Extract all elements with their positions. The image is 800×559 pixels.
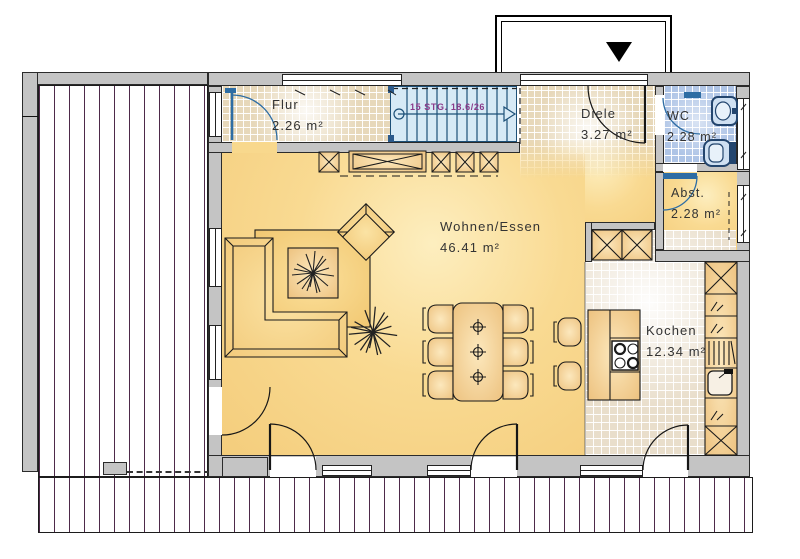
window-left-flur xyxy=(209,92,222,137)
room-area: 46.41 m² xyxy=(440,237,541,258)
staircase-area xyxy=(390,86,517,142)
deck-frame-joint xyxy=(22,116,38,117)
window-top-flur xyxy=(282,74,402,86)
deck-bottom xyxy=(38,477,753,533)
window-bottom-1 xyxy=(322,465,372,476)
room-label-wc: WC 2.28 m² xyxy=(667,106,717,148)
porch-inner-line xyxy=(501,21,666,72)
wall-abst-bottom xyxy=(655,250,750,262)
room-label-flur: Flur 2.26 m² xyxy=(272,94,324,136)
room-name: Kochen xyxy=(646,320,706,341)
kitchen-door-opening xyxy=(643,457,688,477)
room-area: 12.34 m² xyxy=(646,341,706,362)
window-left-1 xyxy=(209,228,222,287)
terrace-door-bl-opening xyxy=(270,457,316,477)
window-left-2 xyxy=(209,325,222,380)
deck-frame-left xyxy=(22,72,38,472)
entrance-porch xyxy=(495,15,672,72)
entrance-marker-icon xyxy=(606,42,632,62)
room-label-wohnen-essen: Wohnen/Essen 46.41 m² xyxy=(440,216,541,258)
wc-door-opening xyxy=(655,95,664,135)
deck-frame-top xyxy=(22,72,208,85)
room-label-kochen: Kochen 12.34 m² xyxy=(646,320,706,362)
wall-kitchen-top xyxy=(585,222,655,230)
staircase-label: 15 STG. 18.6/26 xyxy=(410,102,485,112)
entrance-door-sidelight xyxy=(520,74,648,86)
room-wohnen-essen-floor xyxy=(222,153,585,455)
deck-boundary-dashes xyxy=(127,471,210,473)
window-bottom-kitchen xyxy=(580,465,643,476)
terrace-door-left-opening xyxy=(209,387,222,435)
window-right-abst xyxy=(737,185,750,243)
room-name: Wohnen/Essen xyxy=(440,216,541,237)
wall-kitchen-stub xyxy=(585,222,592,262)
window-right-wc xyxy=(737,98,750,170)
flur-passage xyxy=(232,142,277,153)
window-bottom-2 xyxy=(427,465,471,476)
room-area: 2.28 m² xyxy=(667,127,717,148)
deck-left xyxy=(38,85,208,477)
floor-plan: Flur 2.26 m² 15 STG. 18.6/26 Diele 3.27 … xyxy=(0,0,800,559)
room-name: Flur xyxy=(272,94,324,115)
abst-door-opening xyxy=(663,164,697,172)
room-label-diele: Diele 3.27 m² xyxy=(581,103,633,145)
room-name: Diele xyxy=(581,103,633,124)
wall-corner-step xyxy=(222,457,268,477)
room-area: 2.28 m² xyxy=(671,204,721,225)
room-name: Abst. xyxy=(671,183,721,204)
room-area: 2.26 m² xyxy=(272,115,324,136)
room-label-abstellraum: Abst. 2.28 m² xyxy=(671,183,721,225)
deck-step xyxy=(103,462,127,475)
room-name: WC xyxy=(667,106,717,127)
terrace-door-br-opening xyxy=(471,457,517,477)
room-area: 3.27 m² xyxy=(581,124,633,145)
wall-abst-left xyxy=(655,172,664,250)
